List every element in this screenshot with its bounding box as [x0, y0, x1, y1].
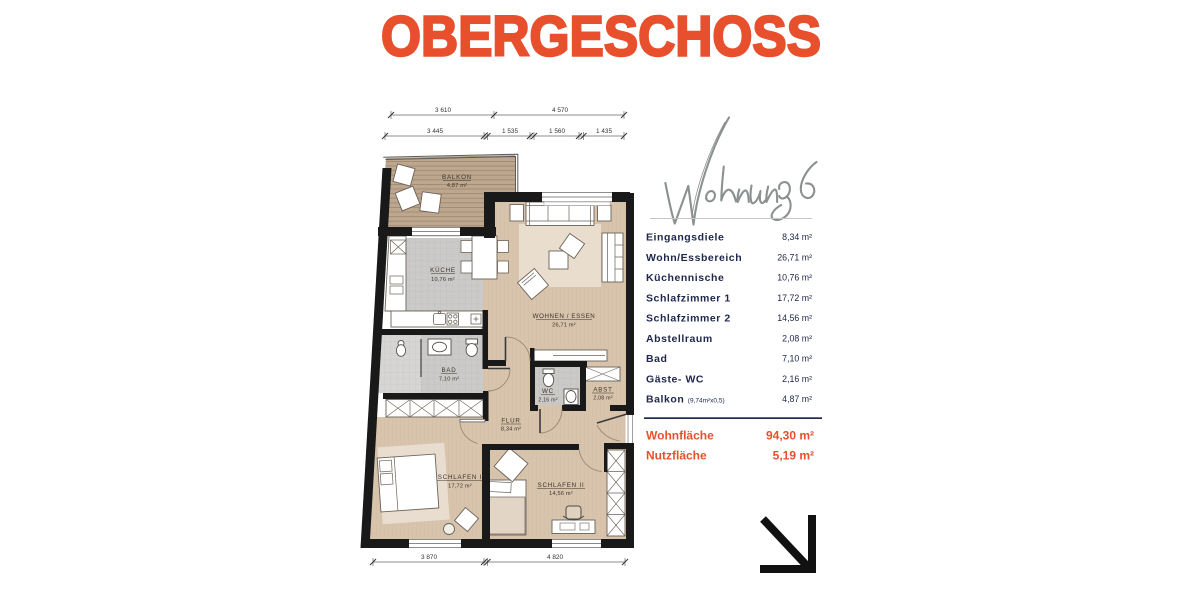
svg-text:KÜCHE: KÜCHE — [430, 267, 456, 274]
svg-text:10,76 m²: 10,76 m² — [431, 277, 455, 283]
svg-text:Gäste- WC: Gäste- WC — [646, 373, 704, 385]
svg-text:17,72 m²: 17,72 m² — [777, 293, 812, 303]
svg-text:Bad: Bad — [646, 353, 668, 365]
svg-text:2,08 m²: 2,08 m² — [782, 333, 812, 343]
svg-text:4 820: 4 820 — [547, 554, 563, 561]
svg-text:4 570: 4 570 — [552, 107, 568, 114]
svg-text:17,72 m²: 17,72 m² — [448, 484, 472, 490]
svg-text:Balkon (9,74m²x0,5): Balkon (9,74m²x0,5) — [646, 394, 725, 406]
svg-text:8,34 m²: 8,34 m² — [782, 232, 812, 242]
svg-text:4,87 m²: 4,87 m² — [447, 183, 467, 189]
svg-text:2,16 m²: 2,16 m² — [782, 374, 812, 384]
svg-text:4,87 m²: 4,87 m² — [782, 394, 812, 404]
svg-text:14,56 m²: 14,56 m² — [777, 313, 812, 323]
svg-text:10,76 m²: 10,76 m² — [777, 273, 812, 283]
svg-text:94,30 m²: 94,30 m² — [766, 429, 814, 443]
svg-text:BAD: BAD — [441, 367, 456, 374]
svg-text:26,71 m²: 26,71 m² — [552, 323, 576, 329]
svg-text:26,71 m²: 26,71 m² — [777, 252, 812, 262]
svg-text:Eingangsdiele: Eingangsdiele — [646, 232, 724, 244]
svg-text:OBERGESCHOSS: OBERGESCHOSS — [381, 5, 821, 69]
svg-text:3 445: 3 445 — [427, 128, 443, 135]
svg-text:1 535: 1 535 — [502, 128, 518, 135]
svg-text:1 560: 1 560 — [549, 128, 565, 135]
svg-text:SCHLAFEN II: SCHLAFEN II — [538, 482, 585, 489]
svg-text:FLUR: FLUR — [501, 418, 520, 425]
svg-text:Küchennische: Küchennische — [646, 272, 724, 284]
svg-text:ABST: ABST — [593, 387, 612, 394]
svg-text:5,19 m²: 5,19 m² — [773, 449, 814, 463]
svg-text:Schlafzimmer 1: Schlafzimmer 1 — [646, 292, 731, 304]
svg-text:WC: WC — [542, 388, 554, 395]
svg-text:2,08 m²: 2,08 m² — [593, 396, 612, 402]
svg-text:14,56 m²: 14,56 m² — [549, 491, 573, 497]
svg-text:Wohn/Essbereich: Wohn/Essbereich — [646, 252, 742, 264]
svg-text:SCHLAFEN I: SCHLAFEN I — [438, 474, 482, 481]
svg-text:8,34 m²: 8,34 m² — [501, 427, 521, 433]
svg-text:WOHNEN / ESSEN: WOHNEN / ESSEN — [533, 313, 596, 320]
svg-text:Schlafzimmer 2: Schlafzimmer 2 — [646, 313, 731, 325]
svg-text:BALKON: BALKON — [442, 174, 472, 181]
svg-text:Abstellraum: Abstellraum — [646, 333, 713, 345]
svg-text:3 870: 3 870 — [421, 554, 437, 561]
svg-text:2,16 m²: 2,16 m² — [538, 398, 557, 404]
svg-text:Wohnfläche: Wohnfläche — [646, 429, 714, 443]
svg-text:3 610: 3 610 — [435, 107, 451, 114]
svg-text:1 435: 1 435 — [596, 128, 612, 135]
svg-text:Nutzfläche: Nutzfläche — [646, 449, 707, 463]
svg-text:7,10 m²: 7,10 m² — [439, 377, 459, 383]
svg-text:7,10 m²: 7,10 m² — [782, 354, 812, 364]
